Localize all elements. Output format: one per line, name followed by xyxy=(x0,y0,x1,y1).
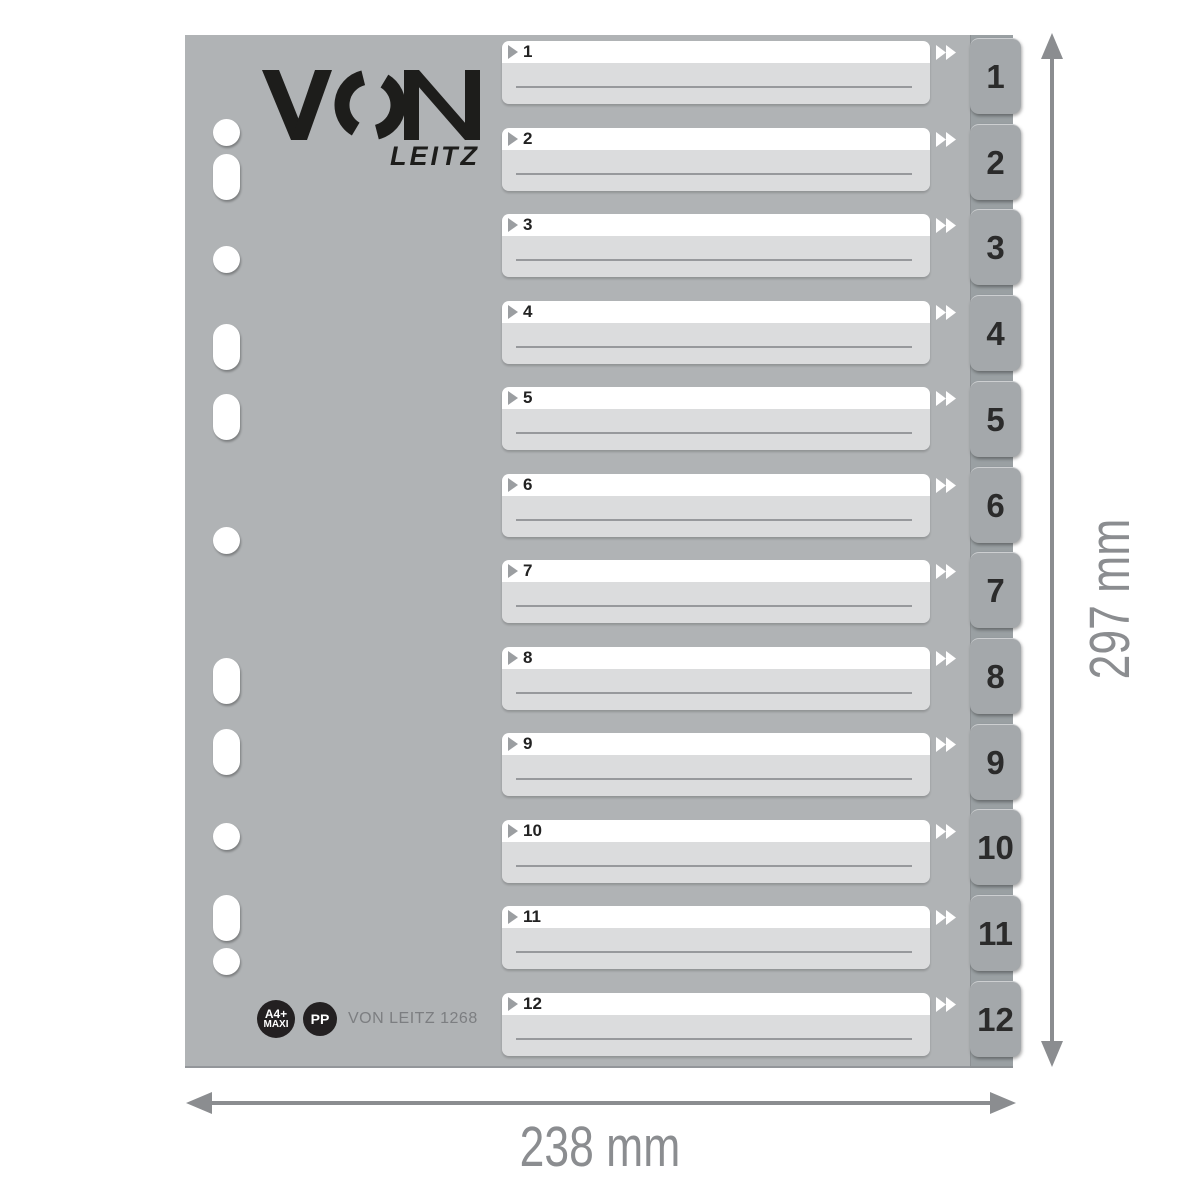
writing-panel xyxy=(502,1015,930,1056)
row-number: 11 xyxy=(523,906,541,928)
writing-panel xyxy=(502,928,930,969)
index-tab-9: 9 xyxy=(970,724,1021,800)
product-code: VON LEITZ 1268 xyxy=(348,1009,478,1029)
index-row: 8 xyxy=(502,647,964,711)
label-field: 11 xyxy=(502,906,930,969)
writing-panel xyxy=(502,842,930,883)
row-number: 5 xyxy=(523,387,532,409)
index-tab-10: 10 xyxy=(970,809,1021,885)
writing-line xyxy=(516,778,912,780)
double-chevron-icon xyxy=(936,218,958,233)
triangle-marker-icon xyxy=(508,391,518,405)
double-chevron-icon xyxy=(936,132,958,147)
row-number: 2 xyxy=(523,128,532,150)
tab-number: 12 xyxy=(977,1001,1014,1039)
writing-panel xyxy=(502,323,930,364)
writing-panel xyxy=(502,755,930,796)
index-row: 9 xyxy=(502,733,964,797)
writing-panel xyxy=(502,582,930,623)
round-punch-hole xyxy=(213,246,240,273)
index-tab-1: 1 xyxy=(970,38,1021,114)
oblong-punch-hole xyxy=(213,154,240,200)
label-field: 7 xyxy=(502,560,930,623)
row-number: 4 xyxy=(523,301,532,323)
tab-number: 3 xyxy=(986,229,1004,267)
double-chevron-icon xyxy=(936,997,958,1012)
label-strip: 3 xyxy=(502,214,930,236)
width-dimension-line xyxy=(206,1101,996,1105)
label-strip: 4 xyxy=(502,301,930,323)
triangle-marker-icon xyxy=(508,305,518,319)
row-number: 12 xyxy=(523,993,542,1015)
double-chevron-icon xyxy=(936,910,958,925)
triangle-marker-icon xyxy=(508,910,518,924)
double-chevron-icon xyxy=(936,651,958,666)
label-field: 6 xyxy=(502,474,930,537)
oblong-punch-hole xyxy=(213,394,240,440)
triangle-marker-icon xyxy=(508,651,518,665)
index-row: 6 xyxy=(502,474,964,538)
arrow-down-icon xyxy=(1041,1041,1063,1067)
triangle-marker-icon xyxy=(508,218,518,232)
tab-number: 8 xyxy=(986,658,1004,696)
tab-number: 4 xyxy=(986,315,1004,353)
size-badge: A4+ MAXI xyxy=(257,1000,295,1038)
index-row: 12 xyxy=(502,993,964,1057)
product-illustration: VON LEITZ 123456789101112 A4+ MAXI PP VO… xyxy=(0,0,1200,1200)
label-strip: 5 xyxy=(502,387,930,409)
triangle-marker-icon xyxy=(508,737,518,751)
width-dimension-label: 238 mm xyxy=(450,1114,750,1180)
index-tab-2: 2 xyxy=(970,124,1021,200)
writing-panel xyxy=(502,496,930,537)
double-chevron-icon xyxy=(936,564,958,579)
oblong-punch-hole xyxy=(213,895,240,941)
index-tab-4: 4 xyxy=(970,295,1021,371)
tab-number: 6 xyxy=(986,487,1004,525)
double-chevron-icon xyxy=(936,478,958,493)
writing-panel xyxy=(502,63,930,104)
label-strip: 1 xyxy=(502,41,930,63)
triangle-marker-icon xyxy=(508,564,518,578)
double-chevron-icon xyxy=(936,824,958,839)
label-strip: 10 xyxy=(502,820,930,842)
round-punch-hole xyxy=(213,823,240,850)
oblong-punch-hole xyxy=(213,324,240,370)
label-field: 12 xyxy=(502,993,930,1056)
triangle-marker-icon xyxy=(508,824,518,838)
leitz-wordmark: LEITZ xyxy=(262,141,480,172)
label-field: 5 xyxy=(502,387,930,450)
index-tab-8: 8 xyxy=(970,638,1021,714)
row-number: 10 xyxy=(523,820,542,842)
index-row: 5 xyxy=(502,387,964,451)
label-field: 3 xyxy=(502,214,930,277)
tab-number: 7 xyxy=(986,572,1004,610)
row-number: 8 xyxy=(523,647,532,669)
index-row: 3 xyxy=(502,214,964,278)
height-dimension-line xyxy=(1050,54,1054,1046)
index-tab-5: 5 xyxy=(970,381,1021,457)
brand-name: VON xyxy=(185,35,186,36)
label-field: 4 xyxy=(502,301,930,364)
size-badge-line2: MAXI xyxy=(264,1020,289,1030)
label-strip: 6 xyxy=(502,474,930,496)
tab-number: 10 xyxy=(977,829,1014,867)
arrow-left-icon xyxy=(186,1092,212,1114)
writing-line xyxy=(516,346,912,348)
tab-number: 2 xyxy=(986,144,1004,182)
writing-panel xyxy=(502,669,930,710)
label-strip: 9 xyxy=(502,733,930,755)
index-row: 4 xyxy=(502,301,964,365)
label-field: 9 xyxy=(502,733,930,796)
index-row: 7 xyxy=(502,560,964,624)
round-punch-hole xyxy=(213,119,240,146)
label-strip: 2 xyxy=(502,128,930,150)
triangle-marker-icon xyxy=(508,997,518,1011)
label-strip: 8 xyxy=(502,647,930,669)
index-tab-3: 3 xyxy=(970,209,1021,285)
row-number: 6 xyxy=(523,474,532,496)
index-row: 1 xyxy=(502,41,964,105)
index-tab-11: 11 xyxy=(970,895,1021,971)
label-field: 1 xyxy=(502,41,930,104)
writing-panel xyxy=(502,236,930,277)
writing-line xyxy=(516,1038,912,1040)
triangle-marker-icon xyxy=(508,132,518,146)
oblong-punch-hole xyxy=(213,658,240,704)
row-number: 3 xyxy=(523,214,532,236)
arrow-right-icon xyxy=(990,1092,1016,1114)
index-tab-7: 7 xyxy=(970,552,1021,628)
oblong-punch-hole xyxy=(213,729,240,775)
writing-line xyxy=(516,519,912,521)
tab-number: 11 xyxy=(978,915,1013,953)
triangle-marker-icon xyxy=(508,478,518,492)
label-strip: 7 xyxy=(502,560,930,582)
row-number: 1 xyxy=(523,41,532,63)
row-number: 9 xyxy=(523,733,532,755)
writing-line xyxy=(516,865,912,867)
tab-number: 1 xyxy=(986,58,1004,96)
index-row: 11 xyxy=(502,906,964,970)
double-chevron-icon xyxy=(936,391,958,406)
material-badge-label: PP xyxy=(311,1011,330,1027)
round-punch-hole xyxy=(213,948,240,975)
label-strip: 12 xyxy=(502,993,930,1015)
writing-line xyxy=(516,432,912,434)
double-chevron-icon xyxy=(936,305,958,320)
divider-sheet: VON LEITZ 123456789101112 A4+ MAXI PP VO… xyxy=(185,35,972,1068)
label-field: 8 xyxy=(502,647,930,710)
writing-panel xyxy=(502,150,930,191)
von-logo xyxy=(262,68,480,142)
row-number: 7 xyxy=(523,560,532,582)
label-field: 10 xyxy=(502,820,930,883)
writing-line xyxy=(516,951,912,953)
arrow-up-icon xyxy=(1041,33,1063,59)
triangle-marker-icon xyxy=(508,45,518,59)
writing-line xyxy=(516,173,912,175)
round-punch-hole xyxy=(213,527,240,554)
index-row: 2 xyxy=(502,128,964,192)
index-tab-6: 6 xyxy=(970,467,1021,543)
index-tab-12: 12 xyxy=(970,981,1021,1057)
writing-line xyxy=(516,86,912,88)
label-strip: 11 xyxy=(502,906,930,928)
label-field: 2 xyxy=(502,128,930,191)
double-chevron-icon xyxy=(936,45,958,60)
tab-number: 9 xyxy=(986,744,1004,782)
writing-line xyxy=(516,259,912,261)
tab-number: 5 xyxy=(986,401,1004,439)
writing-line xyxy=(516,692,912,694)
material-badge: PP xyxy=(303,1002,337,1036)
writing-line xyxy=(516,605,912,607)
index-row: 10 xyxy=(502,820,964,884)
double-chevron-icon xyxy=(936,737,958,752)
writing-panel xyxy=(502,409,930,450)
height-dimension-label: 297 mm xyxy=(1077,449,1143,749)
